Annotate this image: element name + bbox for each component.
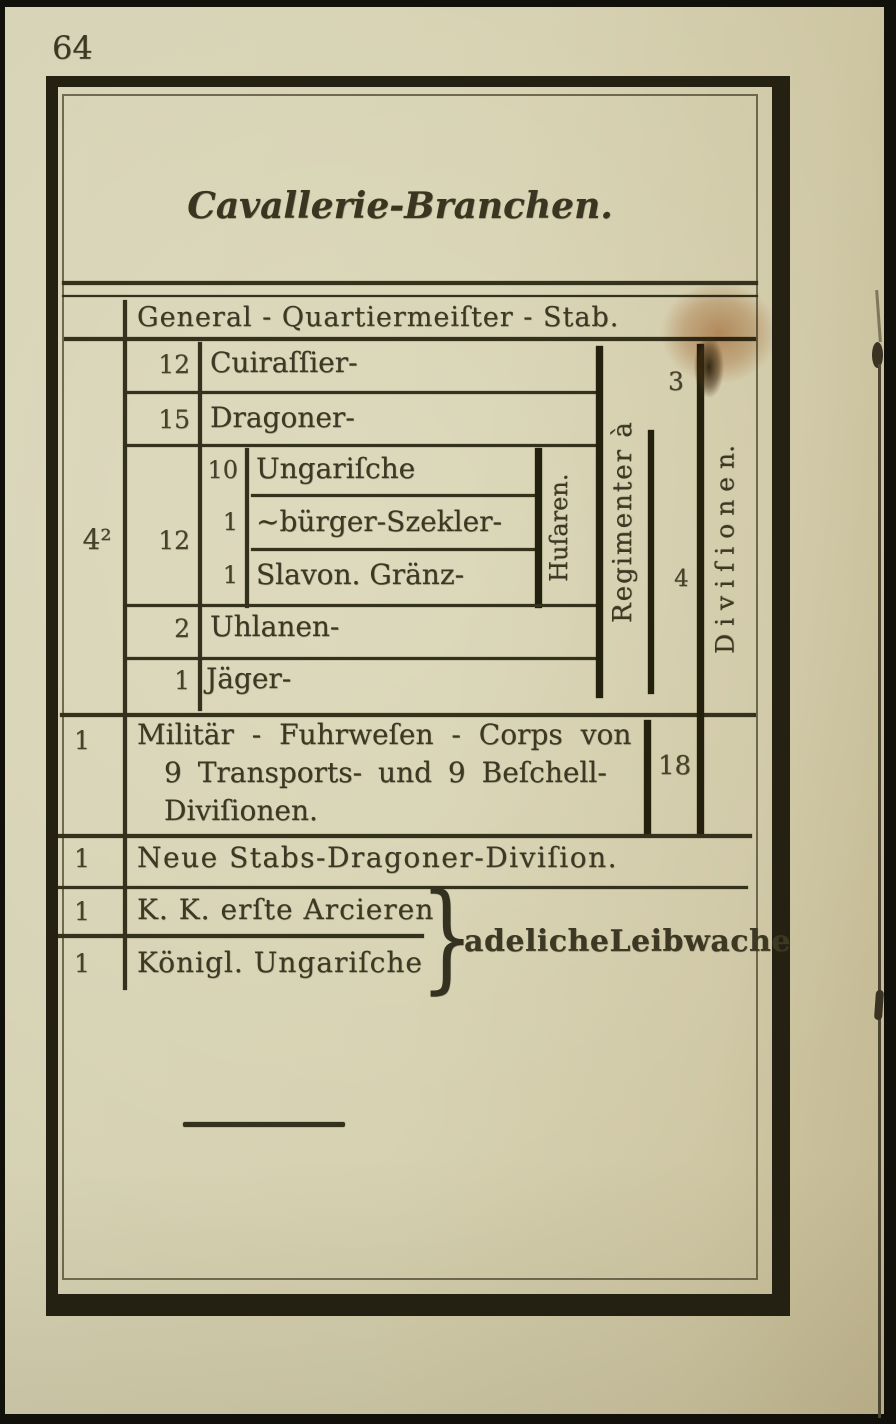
ungarische-count: 10 [186, 457, 238, 485]
husaren-count: 12 [128, 527, 190, 556]
fuhrwesen-line3: Diviſionen. [164, 795, 318, 827]
adjacent-page-edge [878, 364, 881, 1418]
table-title: Cavallerie-Branchen. [90, 186, 710, 227]
fuhrwesen-count: 1 [58, 727, 106, 756]
rule-under-ungarische [251, 494, 537, 497]
regimenter-count-light: 4 [674, 566, 689, 592]
husaren-bracket-label: Huſaren. [545, 450, 575, 606]
dragoner-count: 15 [128, 406, 190, 435]
husaren-bracket-bar [535, 448, 542, 608]
fuhrwesen-line1: Militär - Fuhrweſen - Corps von [137, 719, 631, 751]
dragoner-label: Dragoner- [210, 402, 355, 434]
total-regiments-count: 4² [74, 524, 120, 556]
szekler-label: ~bürger-Szekler- [256, 506, 502, 538]
jaeger-count: 1 [128, 667, 190, 696]
ungarische-label: Ungariſche [256, 453, 415, 485]
transport-divisions-count: 18 [658, 752, 691, 782]
divisionen-bracket-bar [697, 344, 704, 834]
scanned-book-page: 64 Cavallerie-Branchen. General - Quarti… [0, 0, 896, 1424]
uhlanen-count: 2 [128, 615, 190, 644]
cuirassier-count: 12 [128, 351, 190, 380]
ungarische-garde-label: Königl. Ungariſche [137, 947, 423, 979]
regimenter-count-heavy: 3 [668, 368, 684, 397]
stabs-label: Neue Stabs-Dragoner-Diviſion. [137, 842, 618, 874]
jaeger-label: Jäger- [206, 663, 291, 695]
slavon-count: 1 [186, 562, 238, 590]
szekler-count: 1 [186, 509, 238, 537]
section-end-rule [183, 1122, 345, 1127]
title-rule-thick [62, 281, 758, 285]
leibwache-shared-label: adelicheLeibwache [464, 925, 791, 960]
title-rule-thin [62, 295, 758, 297]
fuhrwesen-line2: 9 Transports- und 9 Beſchell- [164, 757, 607, 789]
rule-under-regiments-block [60, 713, 756, 717]
rule-under-szekler [251, 548, 537, 551]
rule-under-cuirassier [126, 391, 596, 394]
rule-under-stabs [58, 886, 748, 889]
divisionen-column-label: D i v i ſ i o n e n. [706, 350, 746, 750]
rule-under-header [64, 337, 756, 341]
arcieren-count: 1 [58, 898, 106, 927]
slavon-label: Slavon. Gränz- [256, 559, 464, 591]
page-number: 64 [52, 30, 93, 67]
rule-under-uhlanen [126, 657, 596, 660]
divider-subcount-column [245, 448, 249, 608]
rule-under-dragoner [126, 444, 596, 447]
arcieren-label: K. K. erſte Arcieren [137, 894, 434, 926]
transport-count-bar [644, 720, 651, 834]
light-cavalry-bracket-bar [648, 430, 654, 694]
header-row-label: General - Quartiermeiſter - Stab. [137, 302, 619, 333]
rule-under-husaren-group [126, 604, 596, 607]
regimenter-bracket-bar [596, 346, 603, 698]
cuirassier-label: Cuiraſſier- [210, 347, 358, 379]
rule-under-fuhrwesen [58, 834, 752, 838]
rule-under-arcieren [58, 934, 424, 938]
ungarische-garde-count: 1 [58, 950, 106, 979]
uhlanen-label: Uhlanen- [210, 611, 339, 643]
regimenter-column-label: Regimenter à [606, 354, 642, 690]
stabs-count: 1 [58, 845, 106, 874]
